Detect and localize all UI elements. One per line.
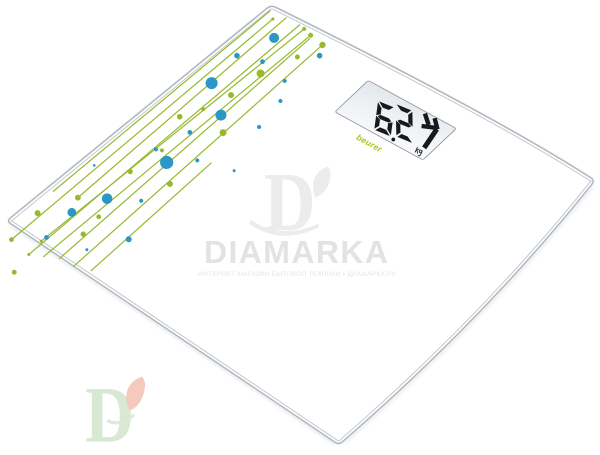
svg-text:ИНТЕРНЕТ-МАГАЗИН БЫТОВОЙ ТЕХНИ: ИНТЕРНЕТ-МАГАЗИН БЫТОВОЙ ТЕХНИКИ • ДИАМА… <box>198 270 396 278</box>
svg-text:D: D <box>85 372 134 455</box>
svg-text:DIAMARKA: DIAMARKA <box>204 234 389 270</box>
